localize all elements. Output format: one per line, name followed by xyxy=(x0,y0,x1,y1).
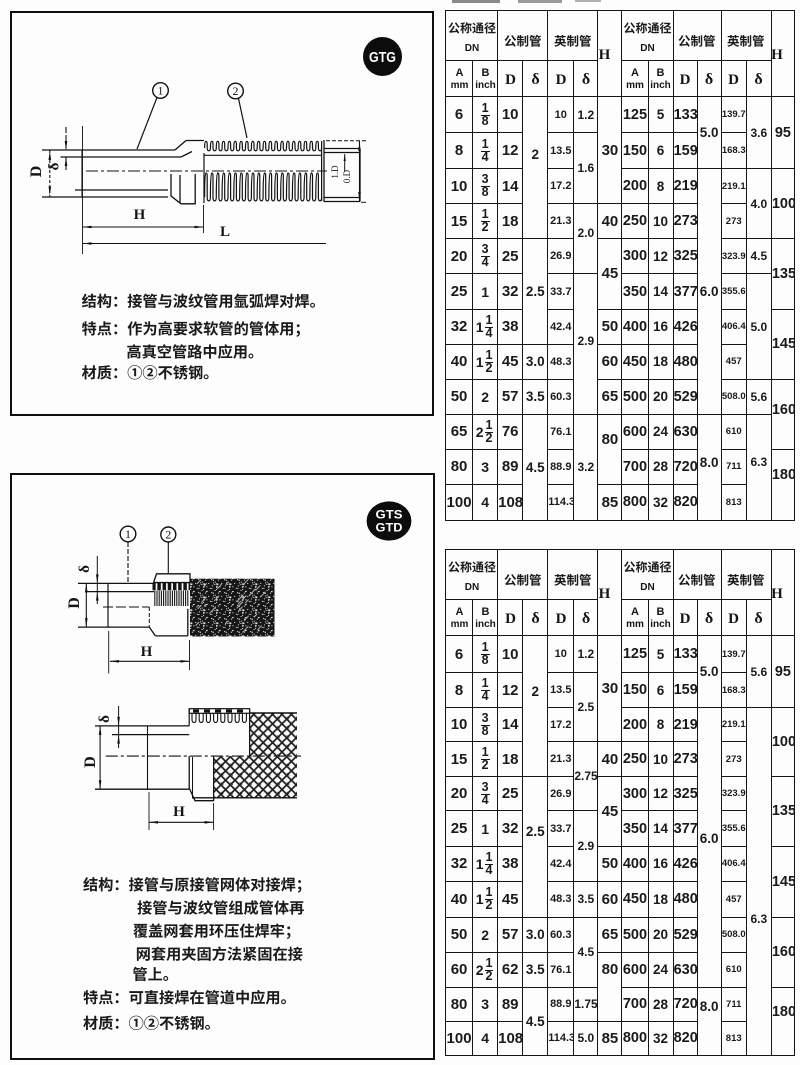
svg-text:DN: DN xyxy=(640,582,654,593)
svg-text:B: B xyxy=(482,606,490,618)
svg-text:DN: DN xyxy=(465,43,479,54)
svg-text:δ: δ xyxy=(705,71,713,88)
svg-text:D: D xyxy=(556,72,567,88)
svg-text:H: H xyxy=(771,47,783,63)
svg-text:mm: mm xyxy=(626,619,644,630)
svg-text:δ: δ xyxy=(754,71,762,88)
svg-text:H: H xyxy=(173,804,185,820)
svg-text:δ: δ xyxy=(582,610,590,627)
svg-text:B: B xyxy=(657,67,665,79)
svg-text:D: D xyxy=(505,72,516,88)
svg-text:mm: mm xyxy=(451,619,469,630)
svg-text:L: L xyxy=(220,224,230,240)
svg-text:D: D xyxy=(728,72,739,88)
svg-text:inch: inch xyxy=(650,80,671,91)
svg-text:δ: δ xyxy=(531,610,539,627)
svg-text:D: D xyxy=(66,597,83,609)
svg-text:H: H xyxy=(599,586,611,602)
svg-text:A: A xyxy=(456,606,464,618)
svg-text:B: B xyxy=(657,606,665,618)
svg-text:D: D xyxy=(728,611,739,627)
svg-text:1: 1 xyxy=(125,527,131,541)
svg-text:GTS: GTS xyxy=(376,508,403,522)
svg-text:1: 1 xyxy=(158,84,164,98)
svg-text:δ: δ xyxy=(47,162,63,170)
svg-text:D: D xyxy=(680,611,691,627)
svg-text:H: H xyxy=(599,47,611,63)
svg-text:δ: δ xyxy=(77,565,93,573)
svg-text:δ: δ xyxy=(754,610,762,627)
svg-text:δ: δ xyxy=(705,610,713,627)
svg-text:A: A xyxy=(631,606,639,618)
svg-text:inch: inch xyxy=(475,80,496,91)
svg-text:A: A xyxy=(631,67,639,79)
svg-text:2: 2 xyxy=(165,528,171,542)
svg-text:0.D: 0.D xyxy=(342,169,352,183)
svg-text:δ: δ xyxy=(531,71,539,88)
svg-text:DN: DN xyxy=(640,43,654,54)
svg-text:D: D xyxy=(556,611,567,627)
svg-text:H: H xyxy=(134,207,146,223)
svg-text:δ: δ xyxy=(97,715,113,723)
svg-text:D: D xyxy=(680,72,691,88)
svg-text:GTD: GTD xyxy=(376,521,403,535)
svg-text:H: H xyxy=(141,644,153,660)
svg-text:B: B xyxy=(482,67,490,79)
svg-text:2: 2 xyxy=(233,84,239,98)
svg-text:1.D: 1.D xyxy=(330,165,340,179)
svg-text:D: D xyxy=(28,166,45,178)
svg-text:GTG: GTG xyxy=(369,50,396,66)
svg-text:D: D xyxy=(505,611,516,627)
svg-text:inch: inch xyxy=(475,619,496,630)
svg-text:H: H xyxy=(771,586,783,602)
svg-text:D: D xyxy=(82,756,99,768)
svg-text:mm: mm xyxy=(451,80,469,91)
svg-text:mm: mm xyxy=(626,80,644,91)
svg-text:inch: inch xyxy=(650,619,671,630)
svg-text:δ: δ xyxy=(582,71,590,88)
svg-text:A: A xyxy=(456,67,464,79)
svg-text:DN: DN xyxy=(465,582,479,593)
